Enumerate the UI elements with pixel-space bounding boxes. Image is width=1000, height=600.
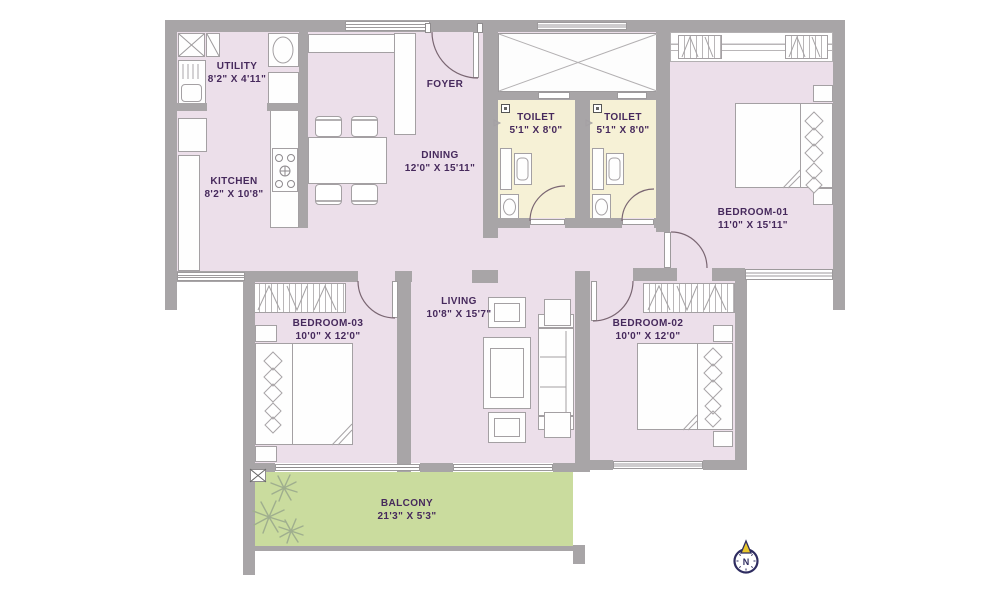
- bedroom-03-nightstand: [255, 446, 277, 462]
- bedroom-02-nightstand: [713, 325, 733, 342]
- wall-foyer-toilet: [483, 32, 498, 238]
- room-dims: 10'0" X 12'0": [293, 330, 364, 343]
- utility-sink-bowl: [181, 84, 202, 102]
- room-name: UTILITY: [208, 60, 267, 73]
- bedroom-02-door-leaf: [591, 281, 597, 321]
- bedroom-01-bed: [735, 103, 833, 188]
- bedroom-01-nightstand: [813, 188, 833, 205]
- shaft-box: [498, 33, 658, 92]
- room-name: TOILET: [509, 111, 562, 124]
- entrance-door-jamb: [477, 23, 483, 33]
- window-bedroom-02: [613, 461, 703, 469]
- entrance-door-leaf: [473, 32, 479, 78]
- fridge: [178, 118, 207, 152]
- wall-toilets-bottom-b: [565, 218, 622, 228]
- wall-bedroom2-bottom-b: [703, 460, 747, 470]
- utility-duct-box: [178, 33, 205, 57]
- bedroom-03-bed-line: [292, 343, 293, 445]
- wall-toilets-bottom-c: [654, 218, 670, 228]
- coffee-table-inner: [490, 348, 524, 398]
- room-name: KITCHEN: [204, 175, 263, 188]
- room-label-living: LIVING10'8" X 15'7": [426, 295, 491, 321]
- room-dims: 11'0" X 15'11": [718, 219, 789, 232]
- bedroom-01-nightstand: [813, 85, 833, 102]
- wardrobe-bedroom-02: [643, 283, 735, 313]
- toilet-2-door-leaf: [622, 219, 654, 225]
- dining-table: [308, 137, 387, 184]
- wall-living-bottom-c: [553, 463, 590, 472]
- wall-utility-kitchen-a: [177, 103, 207, 111]
- window-top-dining: [345, 21, 430, 31]
- room-dims: 21'3" X 5'3": [377, 510, 436, 523]
- room-name: FOYER: [427, 78, 463, 91]
- floor-plan: UTILITY8'2" X 4'11" KITCHEN8'2" X 10'8" …: [0, 0, 1000, 600]
- room-dims: 8'2" X 4'11": [208, 73, 267, 86]
- toilet-2-shower-panel: [592, 148, 604, 190]
- balcony-parapet: [243, 546, 585, 551]
- kitchen-counter-left: [178, 155, 200, 271]
- wall-bedroom2-right: [735, 273, 747, 470]
- room-label-foyer: FOYER: [427, 78, 463, 91]
- toilet-1-door-leaf: [530, 219, 565, 225]
- toilet-1-wc: [514, 153, 532, 185]
- bedroom-02-bed: [637, 343, 733, 430]
- room-dims: 12'0" X 15'11": [405, 162, 475, 175]
- compass-icon: N: [735, 541, 758, 573]
- room-name: BEDROOM-02: [613, 317, 684, 330]
- room-name: BALCONY: [377, 497, 436, 510]
- room-label-utility: UTILITY8'2" X 4'11": [208, 60, 267, 86]
- wall-kitchen-dining: [299, 32, 308, 228]
- stove: [272, 148, 298, 192]
- entrance-door-jamb: [425, 23, 431, 33]
- room-label-bedroom-02: BEDROOM-0210'0" X 12'0": [613, 317, 684, 343]
- room-dims: 8'2" X 10'8": [204, 188, 263, 201]
- wall-left: [165, 20, 177, 310]
- sofa-body: [538, 328, 574, 416]
- room-dims: 5'1" X 8'0": [596, 124, 649, 137]
- room-label-bedroom-03: BEDROOM-0310'0" X 12'0": [293, 317, 364, 343]
- room-name: BEDROOM-01: [718, 206, 789, 219]
- room-label-toilet-1: TOILET5'1" X 8'0": [509, 111, 562, 137]
- toilet-1-shower-panel: [500, 148, 512, 190]
- toilet-2-basin: [592, 194, 611, 220]
- bedroom-01-door-leaf: [664, 232, 671, 268]
- wall-bedroom3-living: [397, 271, 411, 472]
- room-name: BEDROOM-03: [293, 317, 364, 330]
- room-label-kitchen: KITCHEN8'2" X 10'8": [204, 175, 263, 201]
- bedroom-02-nightstand: [713, 431, 733, 447]
- wall-toilet2-bedroom1: [656, 32, 670, 232]
- bedroom-01-bed-line: [800, 103, 801, 188]
- room-name: LIVING: [426, 295, 491, 308]
- foyer-cabinet-top: [308, 34, 395, 53]
- room-dims: 10'8" X 15'7": [426, 308, 491, 321]
- wardrobe-bedroom-01-a: [678, 35, 722, 59]
- khurra-box: [250, 469, 266, 482]
- wall-toilet-divider: [575, 92, 590, 228]
- bedroom-02-bed-line: [697, 343, 698, 430]
- room-name: DINING: [405, 149, 475, 162]
- washing-machine: [268, 33, 299, 67]
- toilet-2-wc: [606, 153, 624, 185]
- window-kitchen: [177, 272, 245, 281]
- room-label-toilet-2: TOILET5'1" X 8'0": [596, 111, 649, 137]
- toilet-1-basin: [500, 194, 519, 220]
- armchair-inner: [494, 303, 520, 322]
- wardrobe-bedroom-01-b: [785, 35, 828, 59]
- room-dims: 5'1" X 8'0": [509, 124, 562, 137]
- utility-duct-box-b: [206, 33, 220, 57]
- wall-bedroom1-bottom-a: [633, 268, 677, 281]
- balcony-pillar-right: [573, 545, 585, 564]
- wall-living-bottom-b: [420, 463, 453, 472]
- wall-living-bedroom2: [575, 271, 590, 472]
- room-label-bedroom-01: BEDROOM-0111'0" X 15'11": [718, 206, 789, 232]
- dining-chair: [351, 116, 378, 137]
- sliding-door-bedroom-03: [275, 464, 420, 471]
- side-table: [544, 412, 571, 438]
- sliding-door-living: [453, 464, 553, 471]
- wall-toilets-bottom-a: [483, 218, 530, 228]
- dining-chair: [315, 116, 342, 137]
- room-name: TOILET: [596, 111, 649, 124]
- foyer-cabinet-side: [394, 33, 416, 135]
- wardrobe-bedroom-03: [253, 283, 346, 313]
- room-label-dining: DINING12'0" X 15'11": [405, 149, 475, 175]
- dining-chair: [351, 184, 378, 205]
- wall-bedroom3-left: [243, 271, 255, 472]
- window-bedroom-01: [745, 269, 833, 280]
- bedroom-03-door-leaf: [392, 281, 398, 318]
- room-label-balcony: BALCONY21'3" X 5'3": [377, 497, 436, 523]
- wall-right: [833, 20, 845, 310]
- wall-top: [165, 20, 845, 32]
- window-shaft-top: [537, 22, 627, 30]
- dining-chair: [315, 184, 342, 205]
- bedroom-03-bed: [255, 343, 353, 445]
- compass-north-label: N: [743, 557, 750, 567]
- wall-utility-kitchen-b: [267, 103, 308, 111]
- room-dims: 10'0" X 12'0": [613, 330, 684, 343]
- compass-north-arrow-icon: [741, 541, 751, 553]
- side-table: [544, 299, 571, 326]
- vent-toilet-1: [538, 92, 570, 99]
- wall-passage-stub: [472, 270, 498, 283]
- bedroom-03-nightstand: [255, 325, 277, 342]
- utility-appliance: [268, 72, 299, 105]
- vent-toilet-2: [617, 92, 647, 99]
- armchair-inner: [494, 418, 520, 437]
